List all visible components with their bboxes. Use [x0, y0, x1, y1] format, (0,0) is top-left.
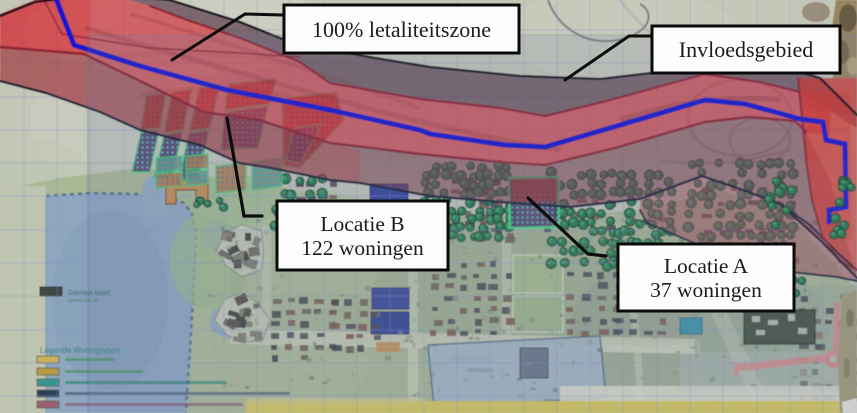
svg-text:122 woningen: 122 woningen [301, 236, 424, 260]
svg-text:Locatie B: Locatie B [320, 212, 404, 236]
svg-text:Locatie A: Locatie A [664, 254, 749, 278]
svg-text:100% letaliteitszone: 100% letaliteitszone [312, 17, 491, 42]
svg-text:37 woningen: 37 woningen [650, 278, 762, 302]
svg-text:Invloedsgebied: Invloedsgebied [679, 37, 813, 62]
